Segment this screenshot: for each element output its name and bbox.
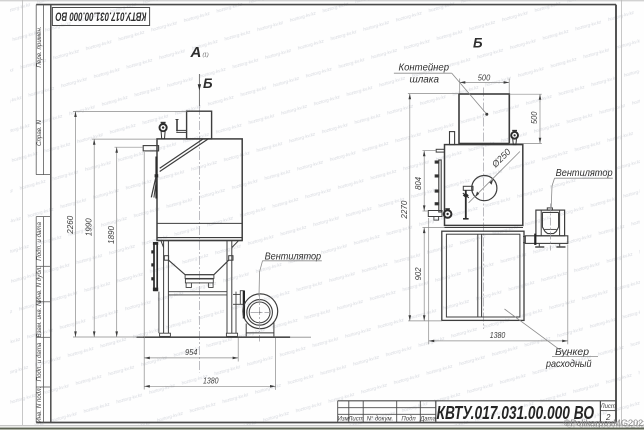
- svg-text:1890: 1890: [106, 226, 116, 244]
- svg-text:расходный: расходный: [545, 358, 591, 370]
- svg-text:Изм: Изм: [338, 417, 349, 423]
- svg-text:Контейнер: Контейнер: [399, 62, 450, 74]
- svg-text:Лист: Лист: [347, 417, 363, 423]
- svg-text:1380: 1380: [490, 330, 506, 340]
- svg-text:Б: Б: [473, 36, 483, 51]
- svg-text:N° докум.: N° докум.: [367, 417, 394, 423]
- svg-text:804: 804: [413, 177, 423, 190]
- svg-text:Б: Б: [203, 76, 213, 91]
- svg-text:КВТУ.017.031.00.000 ВО: КВТУ.017.031.00.000 ВО: [55, 9, 146, 23]
- svg-text:Вентилятор: Вентилятор: [556, 167, 613, 179]
- svg-text:Инв. N дубл.: Инв. N дубл.: [36, 266, 43, 302]
- svg-text:Подп. и дата: Подп. и дата: [36, 342, 43, 381]
- svg-text:Инв. N подл.: Инв. N подл.: [36, 387, 43, 423]
- svg-text:Справ. N: Справ. N: [36, 120, 43, 146]
- svg-text:902: 902: [413, 267, 423, 280]
- svg-text:954: 954: [185, 347, 198, 357]
- svg-text:шлака: шлака: [410, 74, 440, 86]
- svg-text:©PolikarpovMG2021: ©PolikarpovMG2021: [566, 419, 644, 429]
- svg-text:Лист: Лист: [599, 404, 615, 410]
- svg-text:2260: 2260: [65, 216, 75, 235]
- svg-text:500: 500: [478, 72, 491, 82]
- svg-text:1990: 1990: [84, 218, 94, 236]
- svg-text:500: 500: [529, 111, 539, 124]
- svg-text:2270: 2270: [399, 200, 409, 219]
- svg-text:1380: 1380: [203, 375, 219, 385]
- svg-text:Перв. примен.: Перв. примен.: [36, 26, 43, 67]
- svg-text:(1): (1): [203, 53, 209, 59]
- svg-text:Подп. и дата: Подп. и дата: [36, 221, 43, 260]
- svg-text:Подп: Подп: [401, 417, 416, 423]
- svg-text:Взам. инв. N: Взам. инв. N: [36, 301, 43, 338]
- svg-text:А: А: [190, 44, 202, 61]
- svg-text:Дата: Дата: [419, 417, 436, 423]
